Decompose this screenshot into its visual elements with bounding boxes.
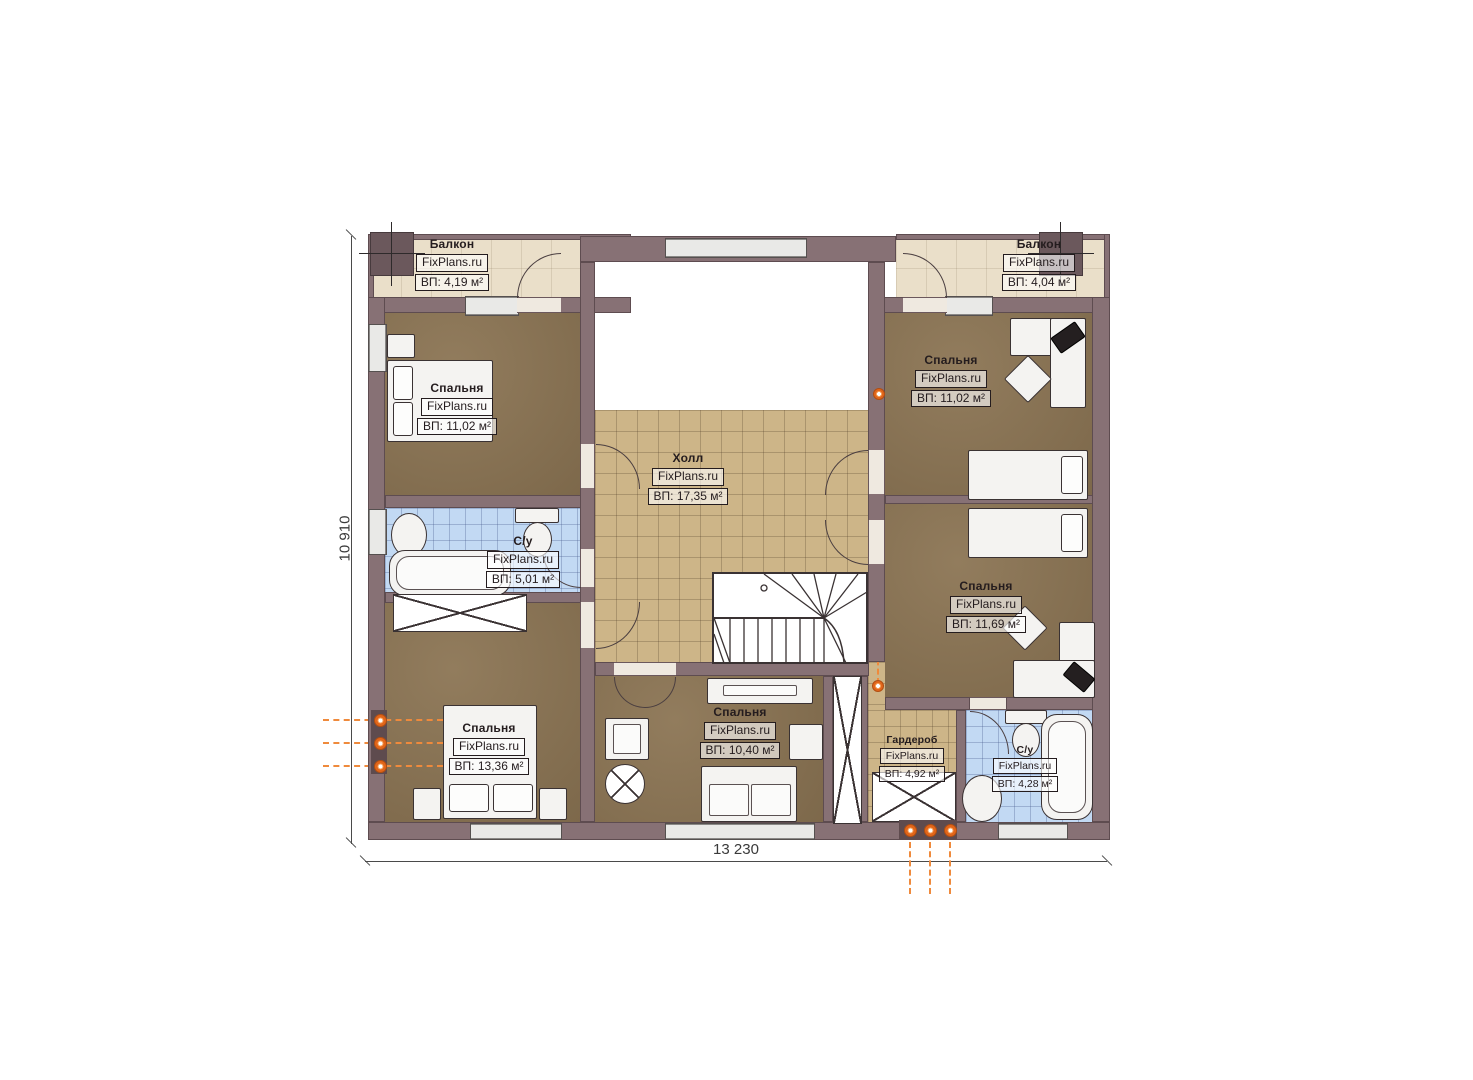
area-box: ВП: 10,40 м² (700, 742, 781, 760)
room-name: Холл (673, 452, 704, 466)
area-box: ВП: 11,02 м² (417, 418, 497, 436)
window-balcony-left (465, 296, 519, 316)
area-box: ВП: 4,28 м² (992, 776, 1058, 792)
outer-wall-right (1092, 297, 1110, 822)
wall-mr-bottom-b (1006, 697, 1093, 710)
area-box: ВП: 13,36 м² (449, 758, 530, 776)
pipe-line (909, 842, 911, 894)
brand-box: FixPlans.ru (416, 254, 488, 272)
room-name: Спальня (924, 354, 977, 368)
inner-wall-left-vertical (580, 262, 595, 822)
brand-box: FixPlans.ru (421, 398, 493, 416)
brand-box: FixPlans.ru (915, 370, 987, 388)
door-gap-bedroom-tl (580, 444, 595, 488)
window-bottom-left (470, 823, 562, 840)
door-gap-balcony-left (517, 297, 561, 313)
room-name: Спальня (430, 382, 483, 396)
area-box: ВП: 17,35 м² (648, 488, 729, 506)
brand-box: FixPlans.ru (487, 551, 559, 569)
room-name: Балкон (430, 238, 475, 252)
dimension-width-label: 13 230 (365, 841, 1107, 858)
area-box: ВП: 4,04 м² (1002, 274, 1076, 292)
pillow (1061, 514, 1083, 552)
area-box: ВП: 5,01 м² (486, 571, 560, 589)
door-gap-bedroom-bm (614, 662, 676, 676)
staircase (712, 572, 868, 664)
room-label-bathroom-right: С/у FixPlans.ru ВП: 4,28 м² (987, 744, 1063, 792)
area-box: ВП: 11,69 м² (946, 616, 1026, 634)
window-top-middle (665, 238, 807, 258)
room-label-bedroom-bm: Спальня FixPlans.ru ВП: 10,40 м² (695, 706, 785, 759)
brand-box: FixPlans.ru (950, 596, 1022, 614)
room-name: Балкон (1017, 238, 1062, 252)
door-gap-balcony-right (903, 297, 947, 313)
pipe-riser (872, 680, 884, 692)
toilet-tank (515, 508, 559, 523)
area-box: ВП: 4,19 м² (415, 274, 489, 292)
pipe-riser (944, 824, 957, 837)
room-label-balcony-right: Балкон FixPlans.ru ВП: 4,04 м² (999, 238, 1079, 291)
pillow (493, 784, 533, 812)
window-bottom-middle (665, 823, 815, 840)
window-balcony-right (945, 296, 993, 316)
room-name: Спальня (462, 722, 515, 736)
pipe-riser (374, 737, 387, 750)
room-name: Гардероб (886, 734, 937, 746)
pipe-line (929, 842, 931, 894)
brand-box: FixPlans.ru (993, 758, 1058, 774)
door-gap-bathroom-right (970, 697, 1006, 710)
sofa-cushion (751, 784, 791, 816)
room-name: С/у (1017, 744, 1034, 756)
side-table (789, 724, 823, 760)
floor-plan-page: Балкон FixPlans.ru ВП: 4,19 м² Балкон Fi… (0, 0, 1473, 1080)
room-label-wardrobe: Гардероб FixPlans.ru ВП: 4,92 м² (866, 734, 958, 782)
door-gap-bedroom-tr (868, 450, 885, 494)
room-label-bathroom-left: С/у FixPlans.ru ВП: 5,01 м² (485, 535, 561, 588)
closet-strip-crossed (833, 676, 862, 824)
wall-bm-right-thin (823, 676, 833, 822)
nightstand (539, 788, 567, 820)
door-gap-bedroom-bl (580, 602, 595, 648)
pipe-riser (924, 824, 937, 837)
wall-mr-bottom-a (885, 697, 970, 710)
pipe-line (949, 842, 951, 894)
round-table (605, 764, 645, 804)
window-left-bedroom (368, 324, 387, 372)
pipe-riser (873, 388, 885, 400)
area-box: ВП: 11,02 м² (911, 390, 991, 408)
pipe-riser (374, 760, 387, 773)
closet-crossed (393, 594, 527, 632)
brand-box: FixPlans.ru (1003, 254, 1075, 272)
bathroom-left-wall-top (385, 495, 581, 508)
floor-plan: Балкон FixPlans.ru ВП: 4,19 м² Балкон Fi… (365, 232, 1113, 892)
column-marker-left (370, 232, 414, 276)
column-axis (391, 222, 392, 286)
balcony-right-wall-side (1104, 234, 1110, 298)
brand-box: FixPlans.ru (880, 748, 945, 764)
room-label-bedroom-tr: Спальня FixPlans.ru ВП: 11,02 м² (909, 354, 993, 407)
nightstand (387, 334, 415, 358)
brand-box: FixPlans.ru (652, 468, 724, 486)
pipe-riser (374, 714, 387, 727)
sofa-cushion (709, 784, 749, 816)
tv (723, 685, 797, 696)
area-box: ВП: 4,92 м² (879, 766, 945, 782)
brand-box: FixPlans.ru (704, 722, 776, 740)
room-label-bedroom-bl: Спальня FixPlans.ru ВП: 13,36 м² (443, 722, 535, 775)
room-label-bedroom-mr: Спальня FixPlans.ru ВП: 11,69 м² (945, 580, 1027, 633)
room-name: Спальня (713, 706, 766, 720)
dimension-line-bottom (365, 861, 1107, 862)
brand-box: FixPlans.ru (453, 738, 525, 756)
dimension-height-label: 10 910 (337, 499, 354, 579)
room-label-balcony-left: Балкон FixPlans.ru ВП: 4,19 м² (412, 238, 492, 291)
armchair-seat (613, 724, 641, 754)
room-name: Спальня (959, 580, 1012, 594)
pipe-riser (904, 824, 917, 837)
void-area (595, 262, 881, 412)
toilet-tank (1005, 710, 1047, 724)
door-gap-bedroom-mr (868, 520, 885, 564)
window-bottom-right (998, 823, 1068, 840)
room-label-bedroom-tl: Спальня FixPlans.ru ВП: 11,02 м² (407, 382, 507, 435)
window-left-bathroom (368, 509, 387, 555)
pillow (1061, 456, 1083, 494)
room-label-hall: Холл FixPlans.ru ВП: 17,35 м² (635, 452, 741, 505)
room-name: С/у (513, 535, 532, 549)
door-gap-bathroom-left (580, 549, 595, 587)
pillow (449, 784, 489, 812)
nightstand (413, 788, 441, 820)
